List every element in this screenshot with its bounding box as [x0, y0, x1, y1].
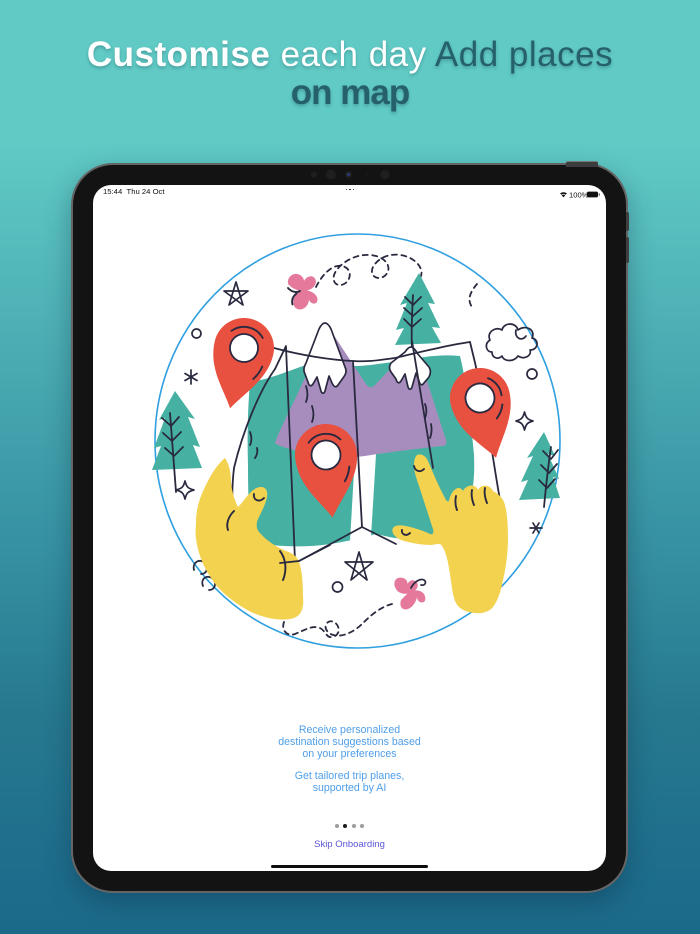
svg-text:100%: 100%: [569, 191, 589, 200]
